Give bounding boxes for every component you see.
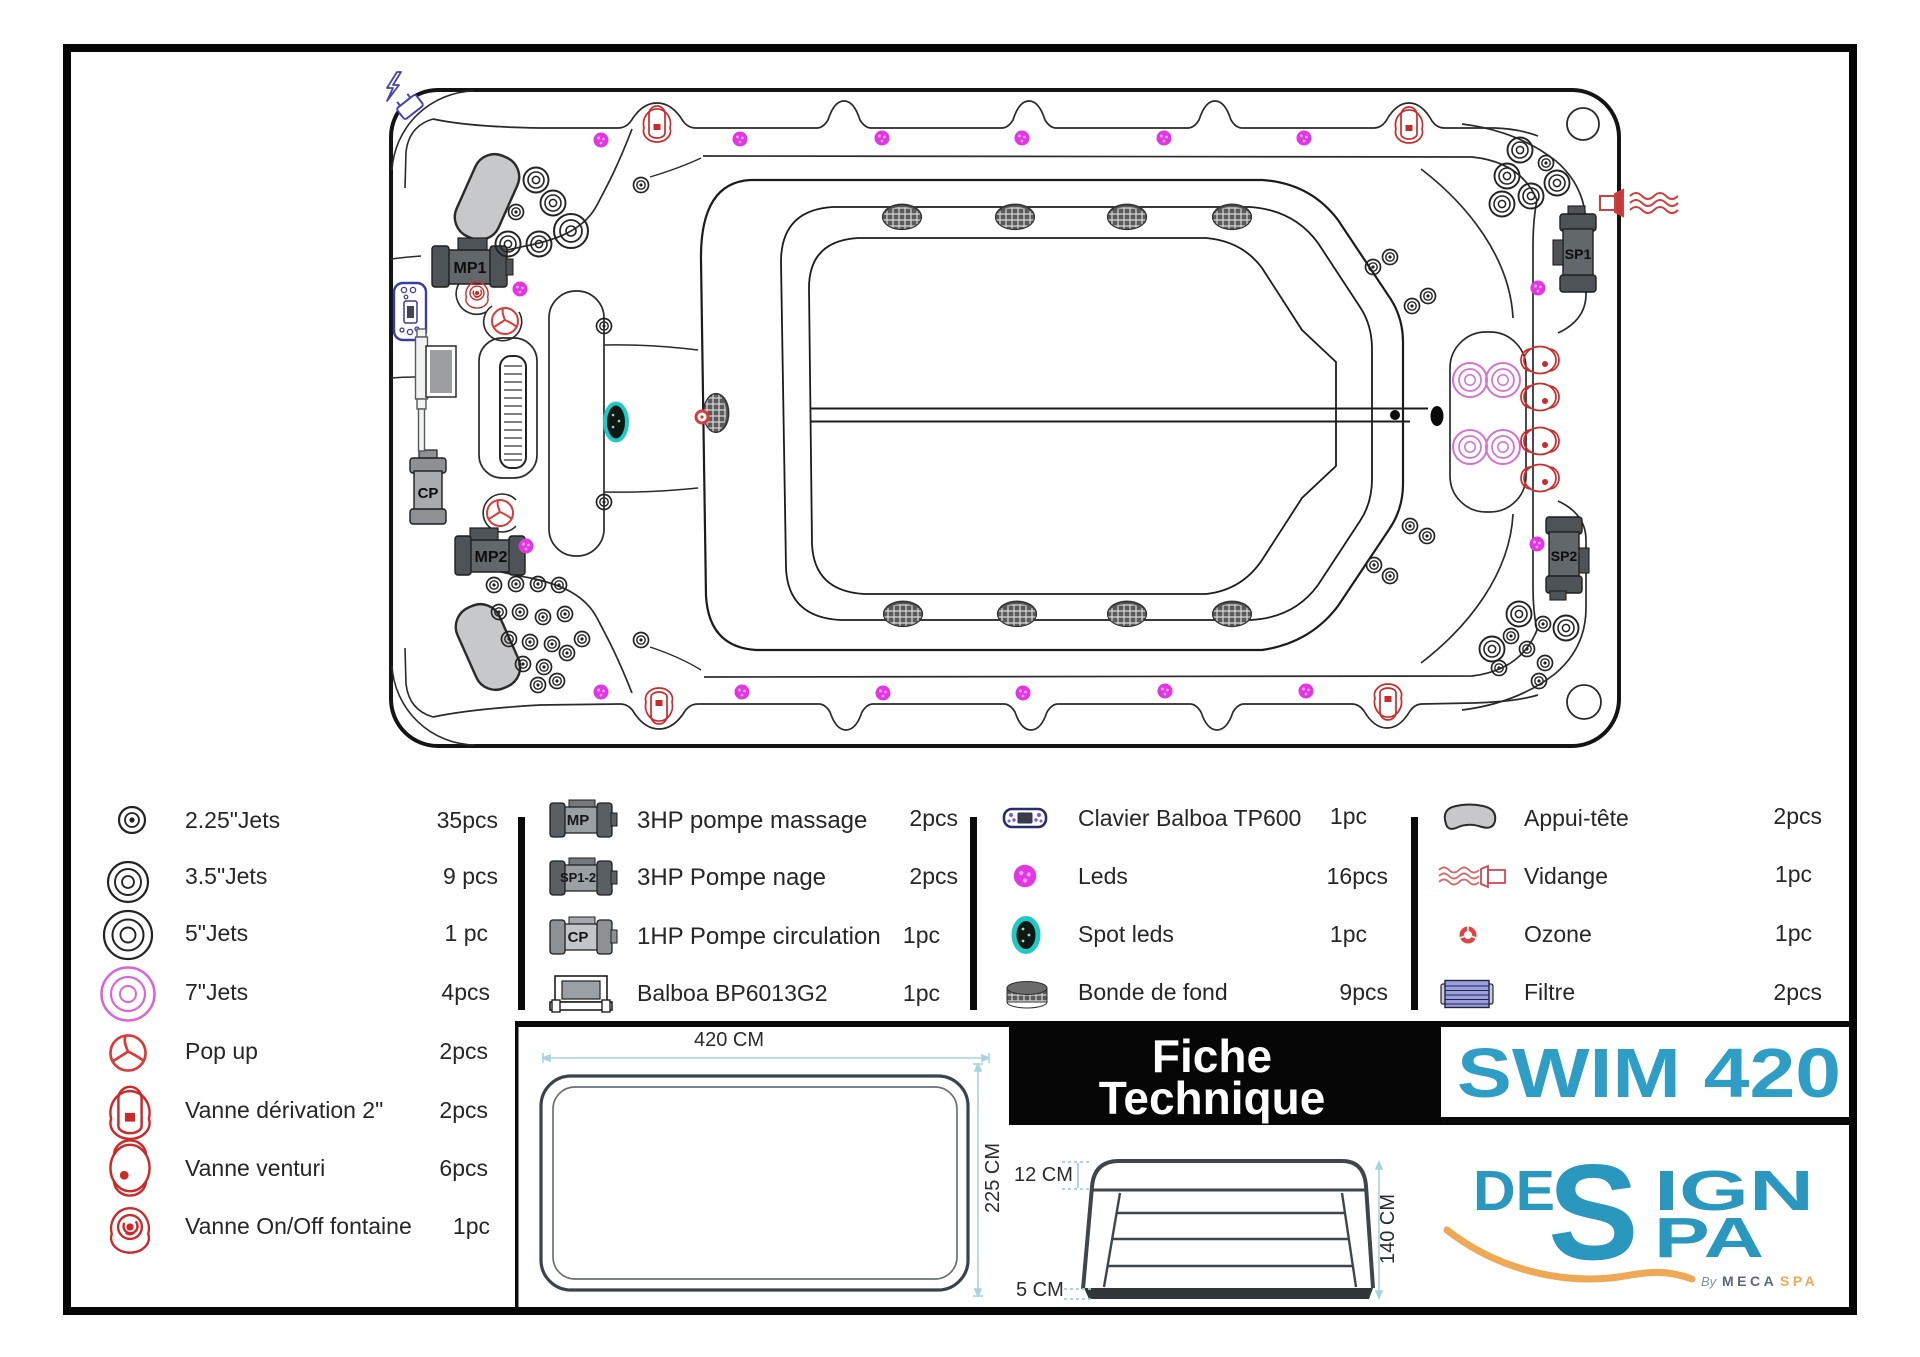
svg-text:225 CM: 225 CM <box>982 1143 1004 1213</box>
svg-text:Vanne venturi: Vanne venturi <box>185 1155 325 1181</box>
svg-text:2pcs: 2pcs <box>1773 979 1822 1005</box>
svg-text:5"Jets: 5"Jets <box>185 920 248 946</box>
svg-text:12 CM: 12 CM <box>1014 1164 1073 1186</box>
svg-text:140 CM: 140 CM <box>1377 1194 1399 1264</box>
svg-text:2pcs: 2pcs <box>909 805 958 831</box>
svg-text:2pcs: 2pcs <box>909 863 958 889</box>
svg-text:2pcs: 2pcs <box>439 1038 488 1064</box>
svg-text:3HP pompe massage: 3HP pompe massage <box>637 807 867 834</box>
svg-text:SP2: SP2 <box>1551 548 1578 564</box>
svg-text:9pcs: 9pcs <box>1339 979 1388 1005</box>
svg-text:1 pc: 1 pc <box>445 920 488 946</box>
svg-text:S: S <box>1548 1136 1639 1288</box>
svg-text:MP1: MP1 <box>454 260 487 277</box>
svg-text:1HP Pompe circulation: 1HP Pompe circulation <box>637 923 881 950</box>
svg-text:Filtre: Filtre <box>1524 979 1575 1005</box>
svg-text:By: By <box>1701 1274 1718 1289</box>
svg-text:35pcs: 35pcs <box>437 807 498 833</box>
svg-text:Appui-tête: Appui-tête <box>1524 805 1629 831</box>
svg-text:Technique: Technique <box>1099 1072 1326 1124</box>
svg-text:7"Jets: 7"Jets <box>185 979 248 1005</box>
svg-text:MP2: MP2 <box>475 549 508 566</box>
svg-text:5 CM: 5 CM <box>1016 1279 1064 1301</box>
svg-text:MECA: MECA <box>1722 1273 1777 1289</box>
svg-text:Spot leds: Spot leds <box>1078 921 1174 947</box>
svg-text:PA: PA <box>1654 1206 1764 1270</box>
svg-text:Vanne On/Off fontaine: Vanne On/Off fontaine <box>185 1213 412 1239</box>
svg-text:CP: CP <box>568 929 589 946</box>
svg-text:MP: MP <box>567 812 590 829</box>
svg-text:9 pcs: 9 pcs <box>443 863 498 889</box>
svg-text:3.5"Jets: 3.5"Jets <box>185 863 267 889</box>
svg-text:16pcs: 16pcs <box>1327 863 1388 889</box>
svg-text:420 CM: 420 CM <box>694 1029 764 1051</box>
svg-text:1pc: 1pc <box>1330 803 1367 829</box>
svg-text:1pc: 1pc <box>1330 921 1367 947</box>
svg-text:2.25"Jets: 2.25"Jets <box>185 807 280 833</box>
svg-text:Vidange: Vidange <box>1524 863 1608 889</box>
svg-text:SP1-2: SP1-2 <box>560 870 596 885</box>
svg-text:Balboa BP6013G2: Balboa BP6013G2 <box>637 980 828 1006</box>
svg-text:1pc: 1pc <box>1775 920 1812 946</box>
svg-text:Leds: Leds <box>1078 863 1128 889</box>
svg-text:1pc: 1pc <box>903 922 940 948</box>
svg-text:SPA: SPA <box>1780 1273 1818 1289</box>
svg-text:DE: DE <box>1473 1159 1555 1223</box>
svg-text:6pcs: 6pcs <box>439 1155 488 1181</box>
svg-text:2pcs: 2pcs <box>439 1097 488 1123</box>
svg-text:4pcs: 4pcs <box>441 979 490 1005</box>
svg-text:1pc: 1pc <box>453 1213 490 1239</box>
svg-text:3HP Pompe nage: 3HP Pompe nage <box>637 864 826 891</box>
svg-text:SP1: SP1 <box>1565 246 1592 262</box>
svg-text:CP: CP <box>418 485 439 502</box>
svg-text:SWIM 420: SWIM 420 <box>1457 1034 1841 1112</box>
svg-text:1pc: 1pc <box>903 980 940 1006</box>
svg-text:Bonde de fond: Bonde de fond <box>1078 979 1228 1005</box>
svg-text:Vanne dérivation 2": Vanne dérivation 2" <box>185 1097 383 1123</box>
svg-text:2pcs: 2pcs <box>1773 803 1822 829</box>
svg-text:Clavier Balboa TP600: Clavier Balboa TP600 <box>1078 805 1301 831</box>
svg-text:Ozone: Ozone <box>1524 921 1592 947</box>
svg-text:Pop up: Pop up <box>185 1038 258 1064</box>
svg-text:1pc: 1pc <box>1775 861 1812 887</box>
